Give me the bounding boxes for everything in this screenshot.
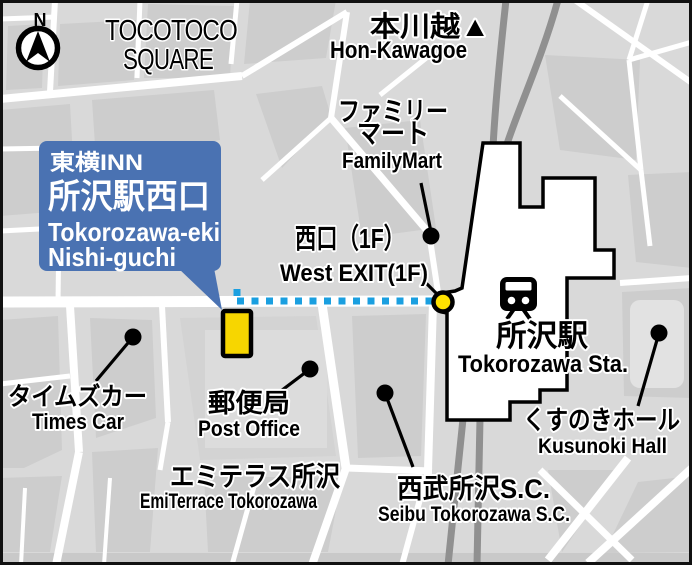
seibu-dot [377, 385, 394, 402]
kusunoki-dot [651, 325, 668, 342]
station-label-en: Tokorozawa Sta. [458, 351, 628, 378]
kusunoki-label-en: Kusunoki Hall [538, 435, 667, 458]
seibu-label-en: Seibu Tokorozawa S.C. [378, 503, 570, 526]
times-car-dot [125, 329, 142, 346]
familymart-label-jp-line2: マート [357, 119, 429, 149]
walking-route-start-dash [234, 289, 241, 296]
hon-kawagoe-label-en: Hon-Kawagoe [330, 37, 467, 64]
map-canvas: N 東横INN 所沢駅西口 Tokorozawa-eki Nishi-guchi… [0, 0, 692, 565]
post-office-dot [302, 361, 319, 378]
times-car-label-en: Times Car [32, 409, 124, 434]
times-car-label-jp: タイムズカー [8, 382, 147, 411]
tocotoco-square-label-line1: TOCOTOCO [105, 15, 237, 47]
post-office-label-en: Post Office [198, 416, 300, 441]
kusunoki-label-jp: くすのきホール [523, 405, 680, 435]
tocotoco-square-label-line2: SQUARE [123, 44, 213, 76]
emiterrace-label-jp: エミテラス所沢 [170, 462, 341, 492]
seibu-label-jp: 西武所沢S.C. [397, 474, 550, 504]
station-label-jp: 所沢駅 [496, 320, 588, 353]
familymart-label-en: FamilyMart [342, 148, 443, 173]
hotel-access-map: N 東横INN 所沢駅西口 Tokorozawa-eki Nishi-guchi… [0, 0, 692, 565]
familymart-dot [423, 228, 440, 245]
west-exit-label-jp: 西口（1F） [295, 222, 405, 254]
hotel-name-en-line2: Nishi-guchi [48, 242, 176, 272]
hotel-marker [223, 311, 251, 356]
post-office-label-jp: 郵便局 [208, 388, 290, 418]
west-exit-label-en: West EXIT(1F) [280, 260, 428, 287]
hotel-name-jp: 所沢駅西口 [48, 178, 210, 216]
emiterrace-label-en: EmiTerrace Tokorozawa [140, 490, 317, 513]
hotel-brand: 東横INN [50, 150, 143, 175]
west-exit-marker [434, 293, 453, 312]
